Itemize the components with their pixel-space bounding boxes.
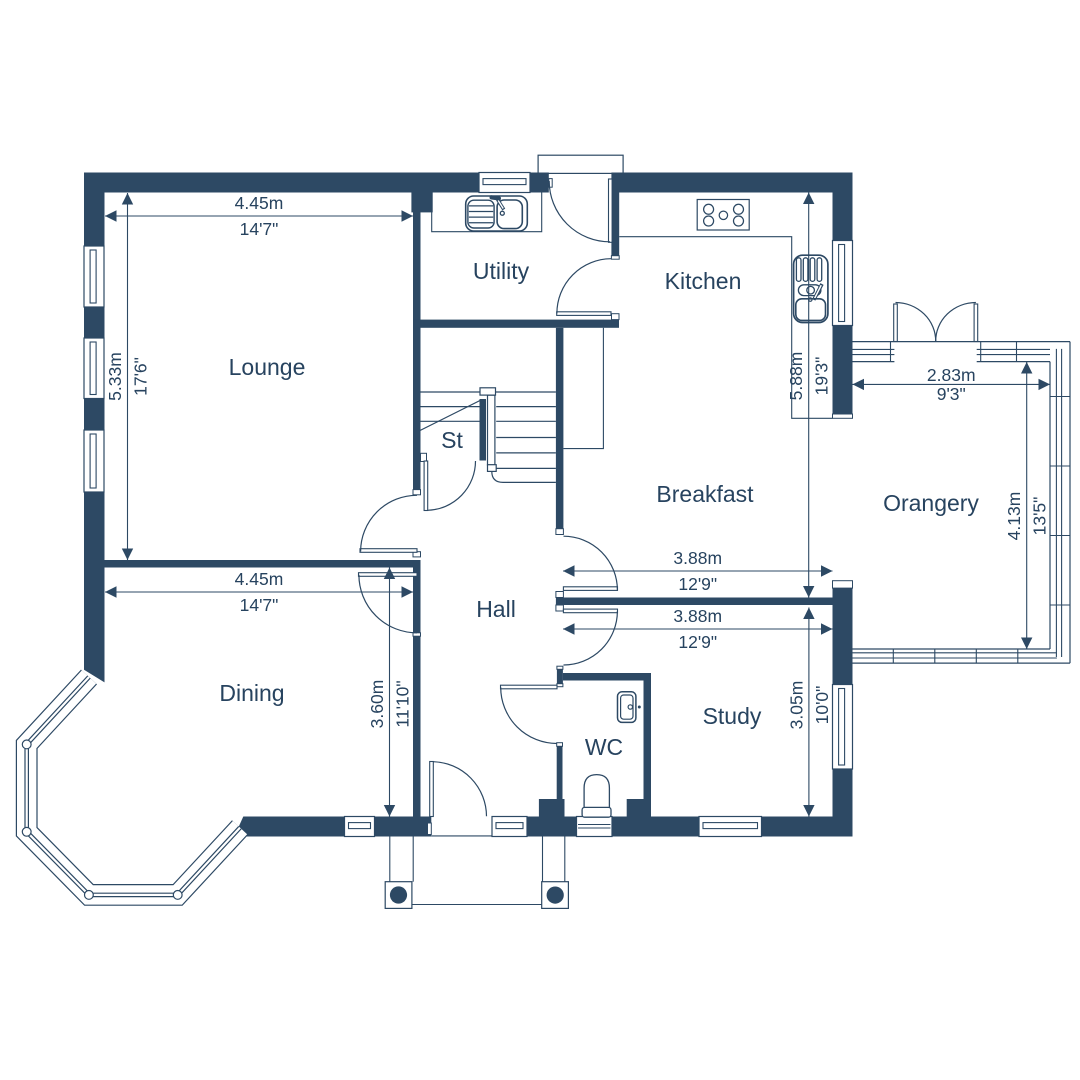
svg-text:4.45m: 4.45m <box>235 569 284 589</box>
svg-text:5.88m: 5.88m <box>786 352 806 401</box>
svg-text:3.88m: 3.88m <box>673 606 722 626</box>
svg-text:Lounge: Lounge <box>229 354 306 380</box>
svg-text:Orangery: Orangery <box>883 490 979 516</box>
svg-text:Hall: Hall <box>476 596 516 622</box>
svg-text:10'0": 10'0" <box>812 686 832 725</box>
svg-text:12'9": 12'9" <box>678 574 717 594</box>
svg-text:St: St <box>441 427 463 453</box>
svg-text:Breakfast: Breakfast <box>656 481 754 507</box>
svg-text:4.45m: 4.45m <box>235 193 284 213</box>
svg-text:17'6": 17'6" <box>131 357 151 396</box>
svg-text:Study: Study <box>703 703 762 729</box>
svg-text:Kitchen: Kitchen <box>665 268 742 294</box>
svg-text:3.60m: 3.60m <box>367 680 387 729</box>
svg-text:14'7": 14'7" <box>240 595 279 615</box>
svg-text:11'10": 11'10" <box>393 680 413 727</box>
svg-text:5.33m: 5.33m <box>105 352 125 401</box>
svg-text:Dining: Dining <box>219 680 284 706</box>
svg-text:2.83m: 2.83m <box>927 365 976 385</box>
svg-text:4.13m: 4.13m <box>1004 492 1024 541</box>
svg-text:3.88m: 3.88m <box>673 548 722 568</box>
svg-text:19'3": 19'3" <box>812 357 832 396</box>
svg-text:9'3": 9'3" <box>937 384 966 404</box>
svg-text:13'5": 13'5" <box>1030 497 1050 536</box>
svg-text:Utility: Utility <box>473 258 530 284</box>
svg-text:14'7": 14'7" <box>240 219 279 239</box>
svg-text:3.05m: 3.05m <box>786 681 806 730</box>
svg-text:WC: WC <box>585 734 623 760</box>
svg-text:12'9": 12'9" <box>678 632 717 652</box>
